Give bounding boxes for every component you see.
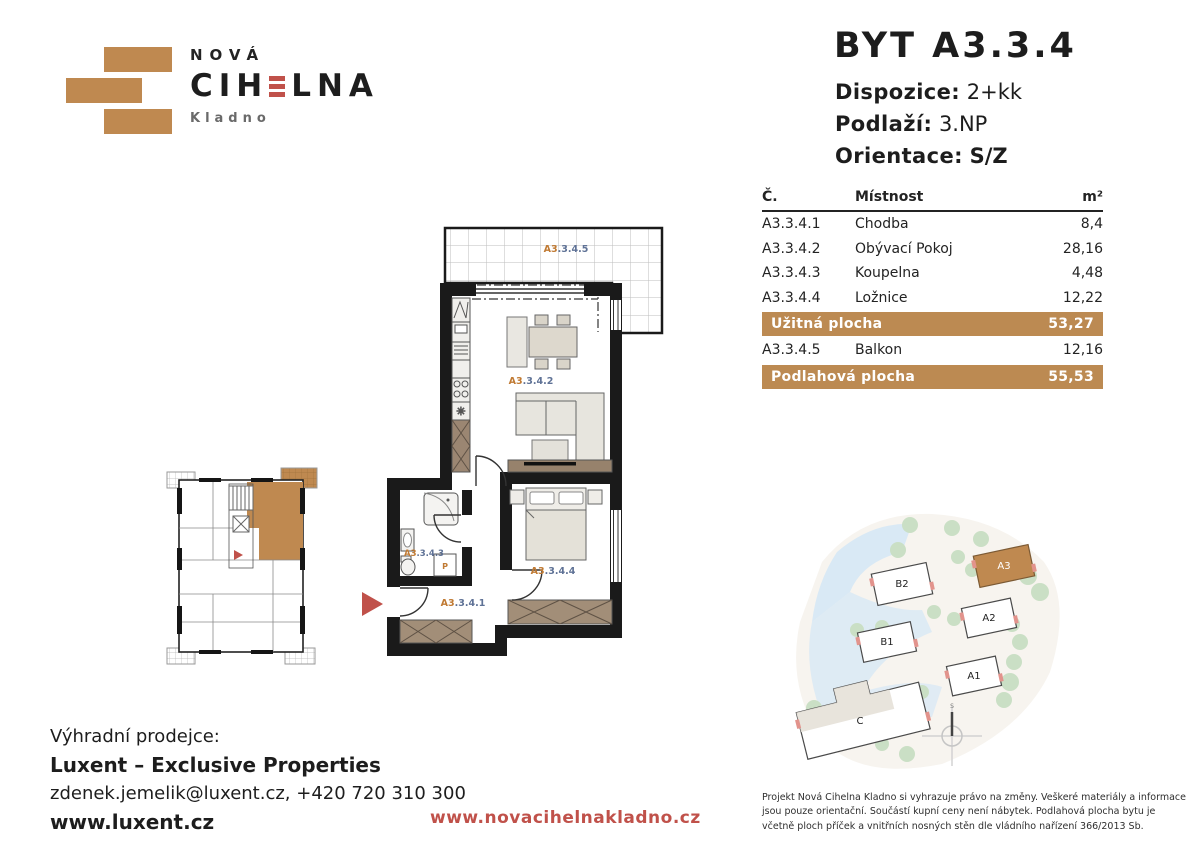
room-label-hallway: A3.3.4.1 xyxy=(441,598,486,609)
spec-dispozice-value: 2+kk xyxy=(967,80,1022,104)
table-row-balcony: A3.3.4.5 Balkon 12,16 xyxy=(762,338,1103,363)
key-plan xyxy=(163,460,323,678)
spec-dispozice: Dispozice: 2+kk xyxy=(835,80,1022,104)
col-header-area: m² xyxy=(1043,189,1103,205)
project-website: www.novacihelnakladno.cz xyxy=(430,808,701,828)
unit-title: BYT A3.3.4 xyxy=(834,26,1077,66)
hallway-furniture xyxy=(400,620,472,643)
toilet xyxy=(401,559,415,575)
spec-orientace-label: Orientace: xyxy=(835,144,963,168)
row-room: Obývací Pokoj xyxy=(855,241,1043,257)
row-room: Chodba xyxy=(855,216,1043,232)
seller-name: Luxent – Exclusive Properties xyxy=(50,753,381,777)
site-plan: B2 B1 A3 A2 A1 C S xyxy=(782,492,1077,777)
bathroom-fixtures: P xyxy=(401,493,458,576)
tv-sideboard xyxy=(508,460,612,472)
row-area: 28,16 xyxy=(1043,241,1103,257)
site-label-a2: A2 xyxy=(982,613,995,624)
site-label-a3: A3 xyxy=(997,561,1010,572)
spec-orientace-value: S/Z xyxy=(970,144,1008,168)
kitchen-island xyxy=(507,317,527,367)
logo-letter-e-icon xyxy=(269,76,285,97)
logo-name-post: LNA xyxy=(291,68,379,104)
row-no: A3.3.4.4 xyxy=(762,290,855,306)
wardrobe xyxy=(400,620,472,643)
row-no: A3.3.4.2 xyxy=(762,241,855,257)
site-label-b2: B2 xyxy=(895,579,908,590)
freezer-icon: ✳ xyxy=(456,405,465,418)
room-label-bedroom: A3.3.4.4 xyxy=(531,566,576,577)
entrance-arrow-icon xyxy=(362,592,383,616)
floor-area-value: 55,53 xyxy=(1048,369,1094,385)
logo-name-main: CIH LNA xyxy=(190,68,379,104)
washer-label: P xyxy=(442,562,448,571)
site-label-c: C xyxy=(857,716,864,727)
row-area: 12,22 xyxy=(1043,290,1103,306)
table-row: A3.3.4.4 Ložnice 12,22 xyxy=(762,286,1103,311)
row-area: 4,48 xyxy=(1043,265,1103,281)
floor-plan: ✳ xyxy=(355,215,695,665)
row-area: 12,16 xyxy=(1043,342,1103,358)
floor-area-row: Podlahová plocha 55,53 xyxy=(762,365,1103,389)
table-row: A3.3.4.3 Koupelna 4,48 xyxy=(762,261,1103,286)
logo-city: Kladno xyxy=(190,111,379,126)
room-label-bathroom: A3.3.4.3 xyxy=(404,549,444,559)
seller-intro: Výhradní prodejce: xyxy=(50,726,220,747)
col-header-room: Místnost xyxy=(855,189,1043,205)
row-room: Balkon xyxy=(855,342,1043,358)
spec-podlazi-label: Podlaží: xyxy=(835,112,932,136)
compass-north-label: S xyxy=(950,703,954,710)
room-label-living: A3.3.4.2 xyxy=(509,376,554,387)
logo-brick-top xyxy=(104,47,172,72)
wardrobe xyxy=(508,600,612,624)
room-label-balcony: A3.3.4.5 xyxy=(544,244,589,255)
col-header-no: Č. xyxy=(762,189,855,205)
living-room-furniture xyxy=(507,315,612,472)
logo: NOVÁ CIH LNA Kladno xyxy=(0,0,420,150)
entrance-door xyxy=(400,588,428,616)
row-room: Ložnice xyxy=(855,290,1043,306)
site-label-a1: A1 xyxy=(967,671,980,682)
logo-name-top: NOVÁ xyxy=(190,46,379,64)
row-no: A3.3.4.5 xyxy=(762,342,855,358)
key-plan-core xyxy=(229,486,253,532)
shower xyxy=(424,493,458,525)
table-row: A3.3.4.2 Obývací Pokoj 28,16 xyxy=(762,237,1103,262)
area-table: Č. Místnost m² A3.3.4.1 Chodba 8,4 A3.3.… xyxy=(762,184,1103,391)
table-row: A3.3.4.1 Chodba 8,4 xyxy=(762,212,1103,237)
logo-name-pre: CIH xyxy=(190,68,268,104)
nightstand xyxy=(588,490,602,504)
seller-contact: zdenek.jemelik@luxent.cz, +420 720 310 3… xyxy=(50,783,466,804)
disclaimer-text: Projekt Nová Cihelna Kladno si vyhrazuje… xyxy=(762,791,1186,834)
row-room: Koupelna xyxy=(855,265,1043,281)
usable-area-row: Užitná plocha 53,27 xyxy=(762,312,1103,336)
site-label-b1: B1 xyxy=(880,637,893,648)
tv xyxy=(524,462,576,466)
dining-table xyxy=(529,327,577,357)
spec-dispozice-label: Dispozice: xyxy=(835,80,960,104)
coffee-table xyxy=(532,440,568,461)
floor-area-label: Podlahová plocha xyxy=(771,369,915,385)
row-no: A3.3.4.3 xyxy=(762,265,855,281)
usable-area-value: 53,27 xyxy=(1048,316,1094,332)
area-table-header: Č. Místnost m² xyxy=(762,184,1103,212)
nightstand xyxy=(510,490,524,504)
spec-orientace: Orientace: S/Z xyxy=(835,144,1008,168)
kitchen: ✳ xyxy=(452,298,470,472)
usable-area-label: Užitná plocha xyxy=(771,316,882,332)
seller-website: www.luxent.cz xyxy=(50,810,214,834)
spec-podlazi-value: 3.NP xyxy=(939,112,987,136)
logo-brick-middle xyxy=(66,78,142,103)
logo-brick-bottom xyxy=(104,109,172,134)
row-area: 8,4 xyxy=(1043,216,1103,232)
row-no: A3.3.4.1 xyxy=(762,216,855,232)
bedroom-furniture xyxy=(508,488,612,624)
spec-podlazi: Podlaží: 3.NP xyxy=(835,112,987,136)
